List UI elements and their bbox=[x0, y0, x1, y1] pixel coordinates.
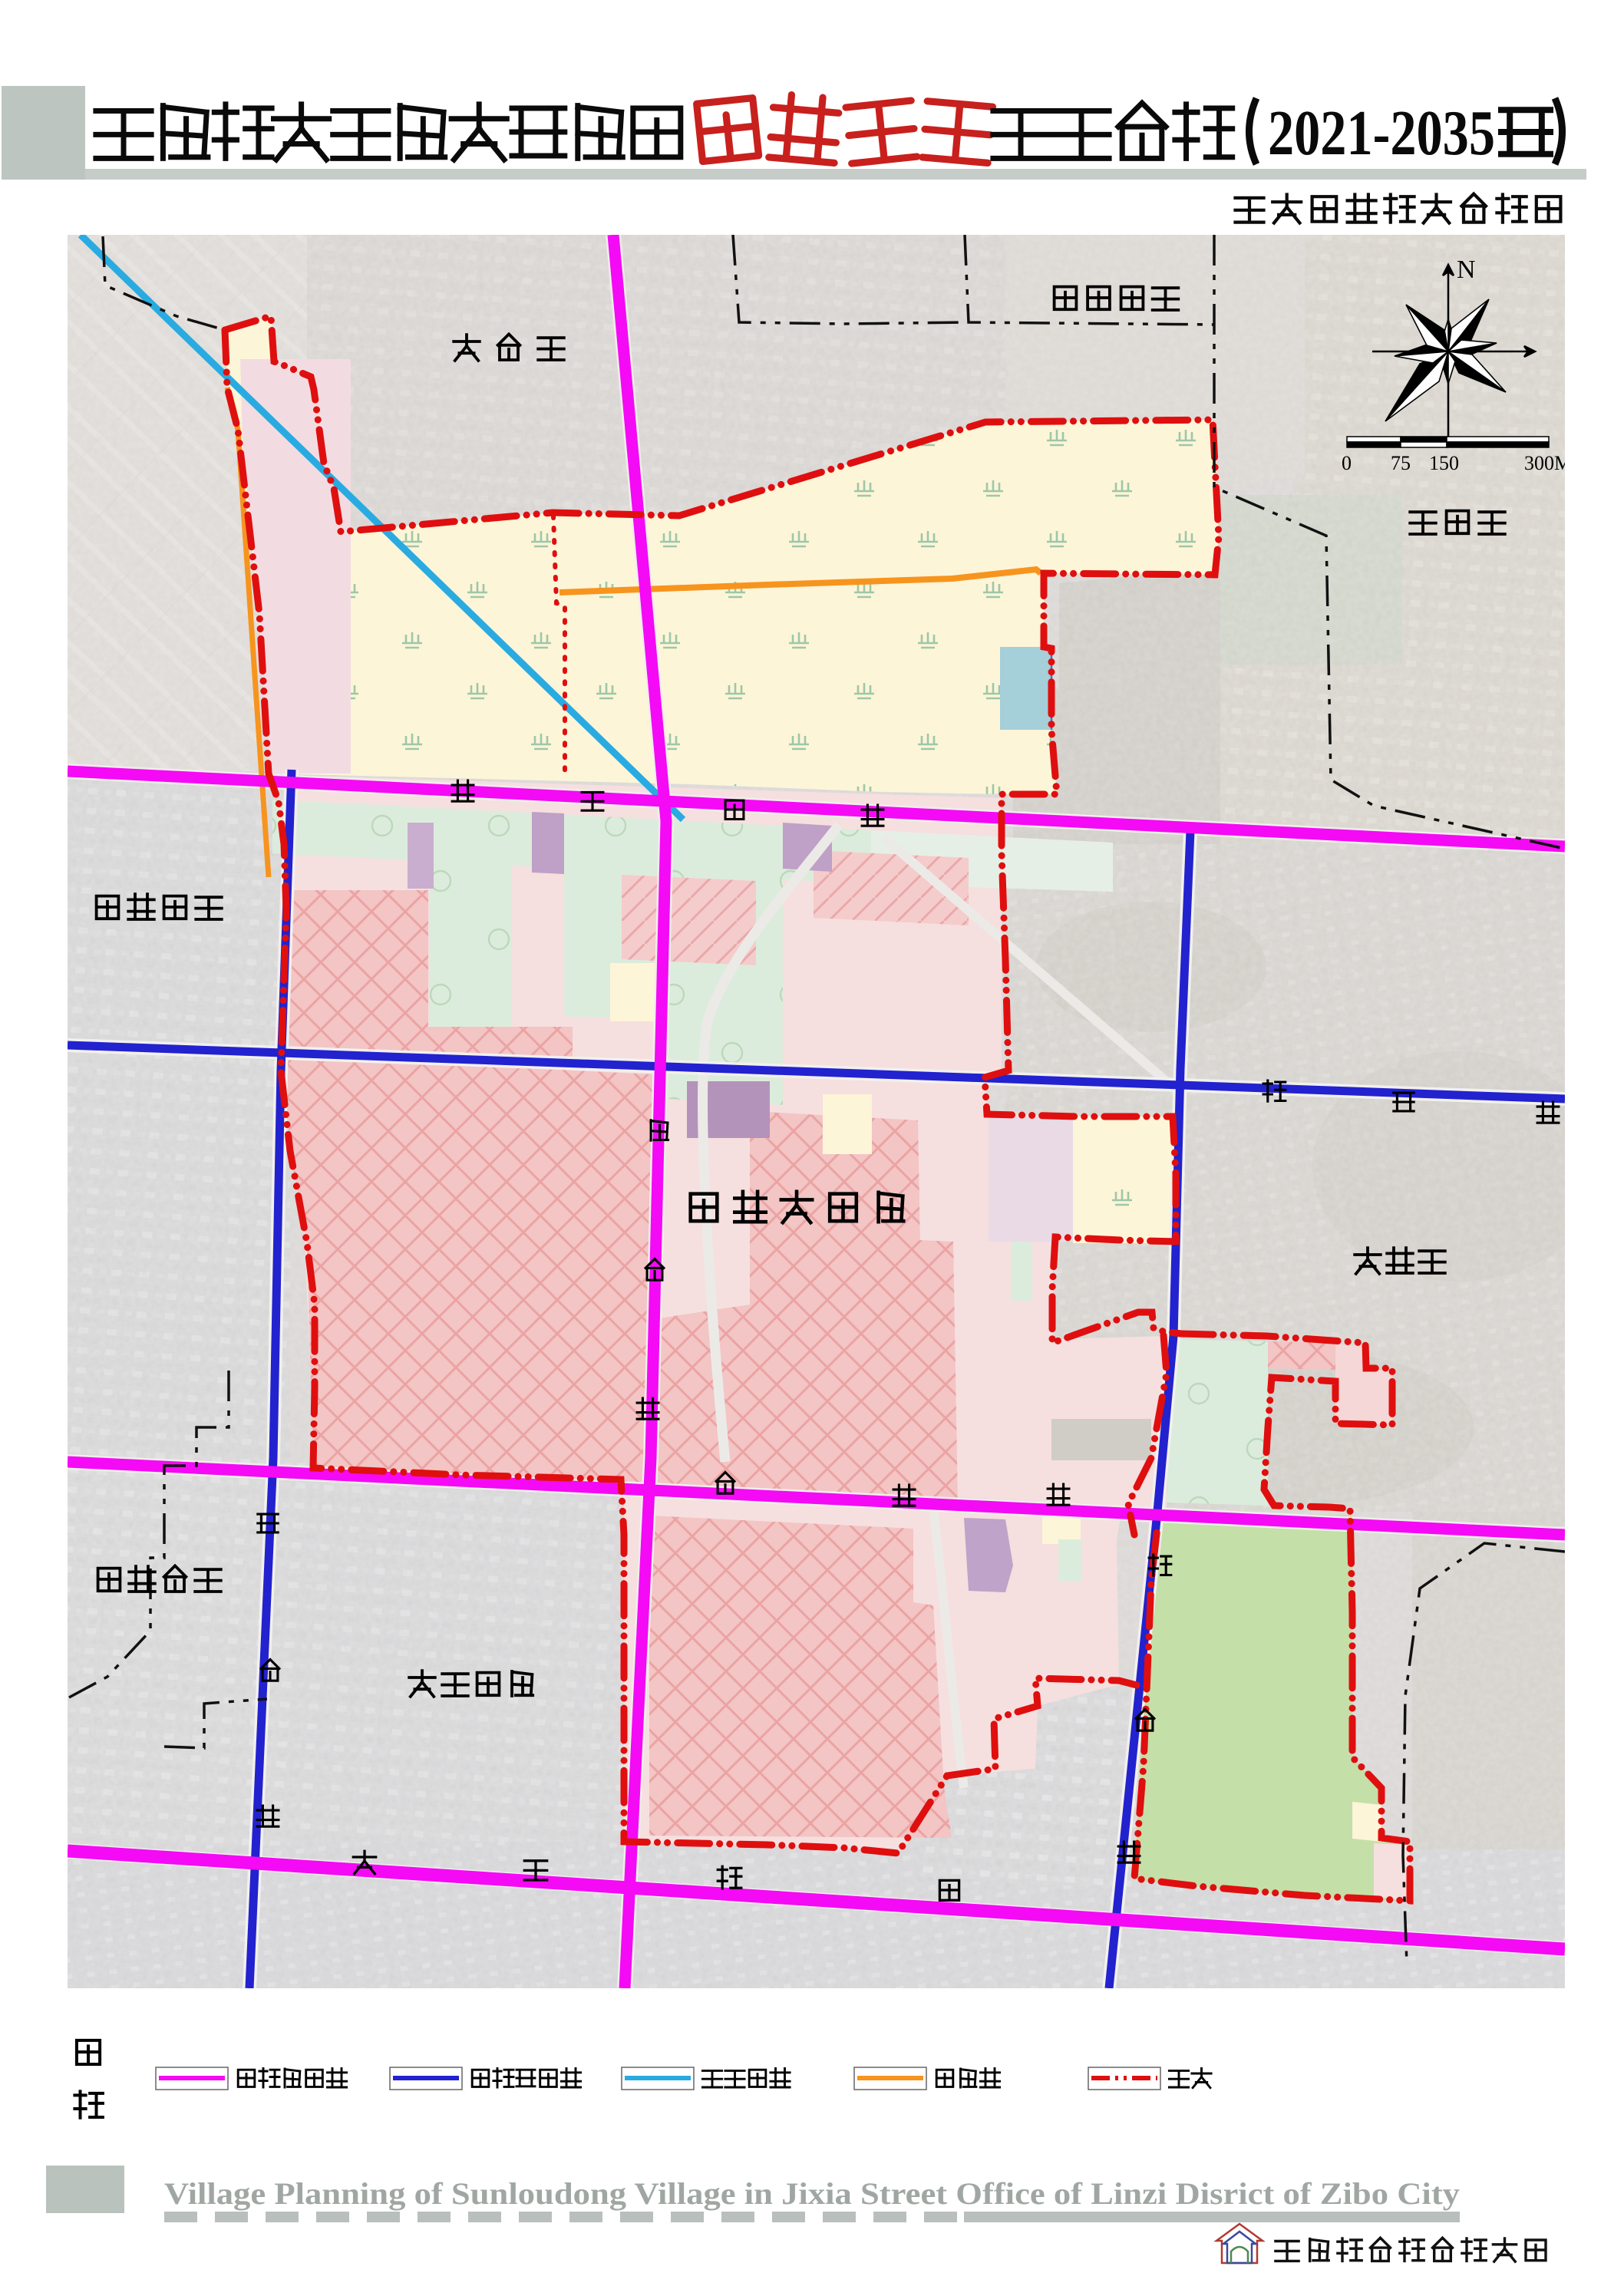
svg-text:150: 150 bbox=[1429, 452, 1459, 474]
svg-text:N: N bbox=[1457, 256, 1476, 284]
svg-text:Village Planning of Sunloudong: Village Planning of Sunloudong Village i… bbox=[164, 2176, 1460, 2211]
svg-text:0: 0 bbox=[1342, 452, 1352, 474]
svg-text:300M: 300M bbox=[1524, 452, 1572, 474]
svg-text:75: 75 bbox=[1391, 452, 1411, 474]
svg-text:2021-2035: 2021-2035 bbox=[1268, 97, 1495, 169]
